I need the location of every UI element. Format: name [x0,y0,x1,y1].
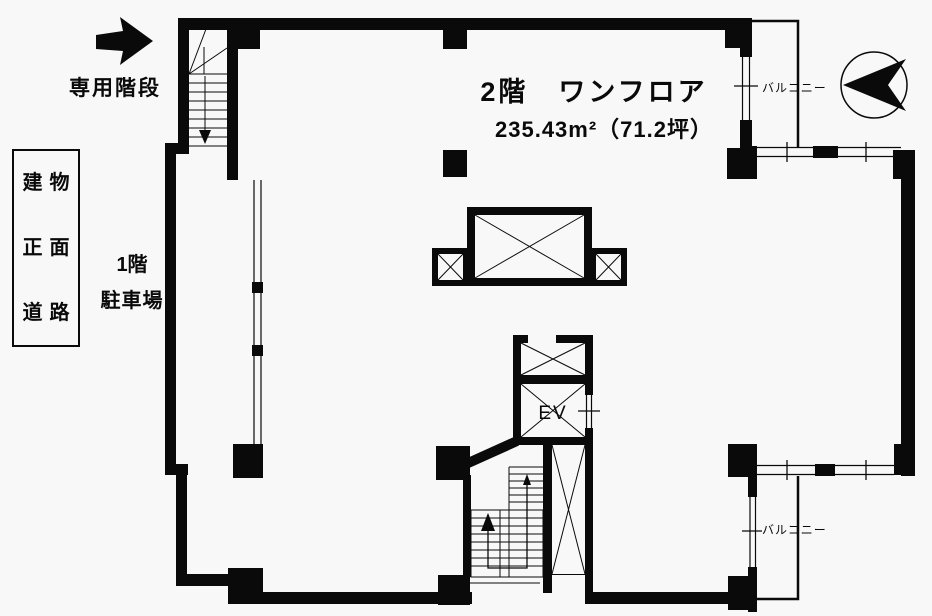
lower-staircase [470,467,543,583]
private-staircase-label: 専用階段 [69,72,161,102]
plan-title: 2階 ワンフロア [428,70,760,109]
front-road-line-2: 正面 [16,238,77,258]
center-shaft [432,207,627,286]
stair-enclosure-walls [463,441,593,604]
upper-staircase [189,29,227,146]
front-road-sign: 建物 正面 道路 [12,149,80,347]
side-shaft-x [552,445,585,575]
balcony-bottom-label: バルコニー [762,521,827,538]
plan-area: 235.43m²（71.2坪） [428,112,780,144]
north-compass-icon [841,52,907,118]
floor-plan: 専用階段 建物 正面 道路 1階 駐車場 2階 ワンフロア 235.43m²（7… [0,0,932,616]
parking-line-1: 1階 [84,255,180,275]
front-road-line-1: 建物 [16,173,77,193]
elevator-label: EV [513,403,593,425]
entrance-arrow-icon [96,17,153,65]
elevator-shaft [513,335,600,445]
parking-label: 1階 駐車場 [84,255,180,311]
balcony-top-label: バルコニー [762,79,827,96]
parking-line-2: 駐車場 [84,291,180,311]
front-road-line-3: 道路 [16,303,77,323]
